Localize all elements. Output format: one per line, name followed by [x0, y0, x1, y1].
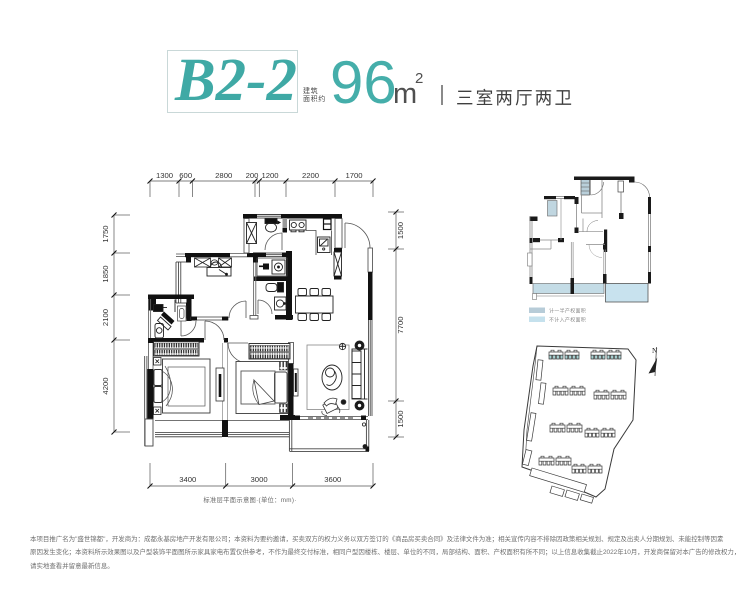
svg-text:1200: 1200	[261, 171, 278, 180]
svg-text:不计入产权面积: 不计入产权面积	[549, 317, 586, 324]
svg-text:计一半产权面积: 计一半产权面积	[549, 308, 586, 315]
svg-text:1700: 1700	[345, 171, 362, 180]
svg-text:N: N	[652, 346, 658, 355]
svg-text:3600: 3600	[324, 475, 341, 484]
svg-text:1500: 1500	[396, 410, 405, 427]
svg-text:1850: 1850	[101, 265, 110, 282]
svg-text:1300: 1300	[156, 171, 173, 180]
svg-text:1500: 1500	[396, 222, 405, 239]
svg-text:2100: 2100	[101, 309, 110, 326]
svg-text:3000: 3000	[251, 475, 268, 484]
svg-text:1750: 1750	[101, 225, 110, 242]
svg-text:600: 600	[179, 171, 192, 180]
svg-text:2200: 2200	[302, 171, 319, 180]
svg-text:2800: 2800	[215, 171, 232, 180]
svg-text:3400: 3400	[179, 475, 196, 484]
svg-text:200: 200	[246, 171, 259, 180]
svg-text:4200: 4200	[101, 377, 110, 394]
svg-text:7700: 7700	[396, 316, 405, 333]
